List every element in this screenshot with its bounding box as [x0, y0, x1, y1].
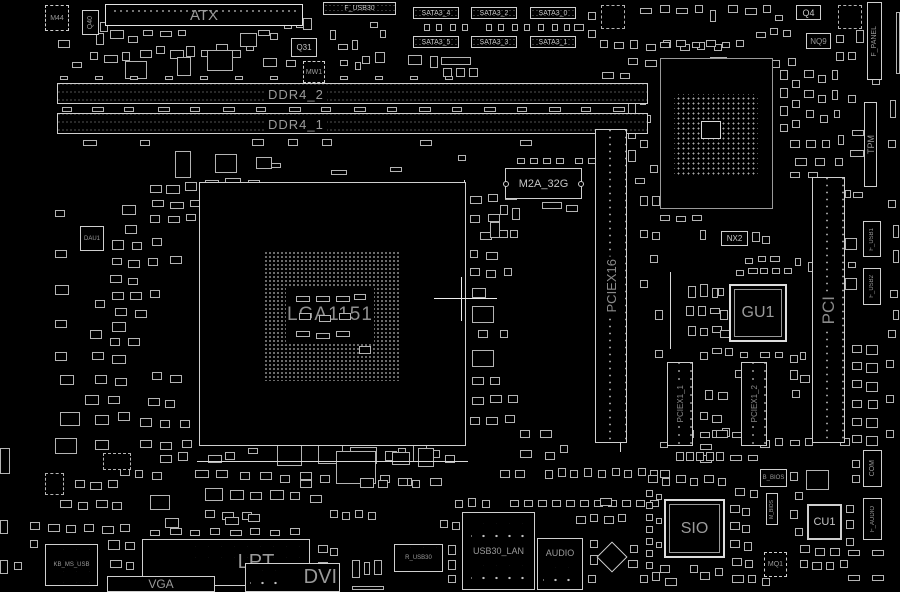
passive-component [893, 225, 899, 238]
passive-component [210, 528, 220, 535]
chip-m44[interactable]: M44 [45, 5, 69, 31]
passive-component [150, 185, 162, 193]
passive-component [132, 242, 142, 250]
passive-component [330, 548, 338, 556]
passive-component [660, 5, 670, 13]
passive-component [230, 530, 242, 536]
passive-component [375, 52, 385, 63]
pci-slot[interactable]: PCI [812, 177, 845, 443]
passive-component [300, 480, 312, 488]
passive-component [760, 352, 770, 358]
pci-label: PCI [819, 293, 839, 327]
passive-component [800, 545, 810, 553]
qfn-chip [601, 5, 625, 29]
chip-sio-label: SIO [681, 520, 709, 538]
chip-dau1-label: DAU1 [84, 236, 100, 242]
passive-component [888, 200, 896, 208]
ddr4-2-label: DDR4_2 [265, 87, 327, 102]
passive-component [690, 478, 698, 486]
passive-component [745, 258, 753, 264]
passive-component [836, 52, 844, 61]
passive-component [524, 24, 530, 31]
f-audio-header[interactable]: F_AUDIO [863, 498, 882, 540]
passive-component [762, 578, 770, 586]
chip-nq9-label: NQ9 [810, 37, 826, 46]
passive-component [566, 205, 578, 212]
passive-component [806, 140, 816, 148]
passive-component [508, 395, 518, 403]
passive-component [763, 5, 771, 13]
passive-component [216, 470, 228, 478]
passive-component [652, 232, 660, 240]
passive-component [848, 52, 856, 60]
passive-component [872, 575, 884, 581]
passive-component [55, 438, 77, 454]
passive-component [160, 31, 172, 37]
passive-component [122, 205, 136, 215]
passive-component [440, 520, 448, 528]
chip-sio[interactable]: SIO [664, 499, 725, 558]
chip-q31[interactable]: Q31 [291, 38, 317, 57]
passive-component [780, 124, 788, 132]
dvi-connector[interactable]: DVI [245, 563, 340, 592]
passive-component [686, 452, 694, 461]
passive-component [868, 400, 878, 409]
passive-component [300, 472, 312, 480]
m2a-32g-slot[interactable]: M2A_32G [505, 168, 582, 199]
passive-component [728, 5, 738, 13]
passive-component [780, 70, 788, 80]
usb30-lan-pins [471, 523, 527, 549]
passive-component [756, 32, 766, 38]
passive-component [150, 290, 160, 298]
passive-component [836, 35, 844, 43]
passive-component [128, 260, 140, 268]
passive-component [700, 572, 710, 580]
passive-component [505, 415, 515, 423]
passive-component [270, 530, 280, 536]
passive-component [462, 24, 468, 31]
passive-component [30, 540, 38, 548]
passive-component [140, 440, 152, 448]
passive-component [732, 558, 742, 566]
passive-component [445, 76, 453, 80]
passive-component [515, 470, 525, 478]
passive-component [470, 268, 480, 276]
passive-component [602, 72, 614, 79]
pch-chipset[interactable] [660, 58, 773, 209]
passive-component [600, 40, 608, 48]
sata3-3-connector[interactable]: SATA3_3 [471, 36, 517, 48]
passive-component [148, 398, 160, 406]
passive-component [250, 528, 260, 535]
passive-component [352, 560, 360, 578]
m2-mount-hole [578, 181, 584, 187]
passive-component [893, 250, 899, 263]
passive-component [60, 375, 74, 385]
passive-component [718, 288, 724, 296]
passive-component [736, 40, 744, 47]
passive-component [640, 230, 648, 238]
socket-pad [316, 333, 330, 339]
passive-component [624, 470, 632, 478]
passive-component [660, 42, 670, 48]
passive-component [486, 24, 492, 31]
passive-component [450, 24, 456, 31]
audio-label: AUDIO [546, 548, 575, 558]
passive-component [128, 338, 140, 346]
passive-component [83, 140, 97, 146]
passive-component [110, 30, 124, 39]
f-usb30-label: F_USB30 [344, 5, 374, 12]
passive-component [656, 494, 662, 500]
passive-component [581, 107, 591, 112]
passive-component [872, 550, 884, 556]
passive-component [538, 24, 544, 31]
passive-component [712, 415, 722, 423]
passive-component [482, 500, 490, 508]
passive-component [838, 135, 844, 145]
socket-pad [319, 315, 331, 322]
com-label: COM [869, 460, 876, 476]
passive-component [580, 500, 589, 507]
chip-dau1[interactable]: DAU1 [80, 226, 104, 251]
passive-component [140, 418, 152, 427]
passive-component [280, 475, 290, 483]
passive-component [866, 436, 878, 446]
passive-component [700, 284, 708, 297]
passive-component [545, 452, 555, 460]
b-bios-chip[interactable]: B_BIOS [760, 469, 787, 487]
passive-component [112, 292, 124, 300]
passive-component [430, 56, 438, 68]
usb30-lan-connector[interactable]: USB30_LAN [462, 512, 535, 590]
passive-component [735, 488, 745, 496]
passive-component [750, 490, 758, 498]
passive-component [248, 514, 260, 522]
sata3-2-label: SATA3_2 [480, 10, 509, 17]
passive-component [856, 30, 864, 43]
sata3-0-connector[interactable]: SATA3_0 [530, 7, 576, 19]
passive-component [195, 470, 209, 478]
passive-component [780, 106, 788, 116]
passive-component [135, 310, 147, 318]
passive-component [722, 42, 730, 48]
passive-component [538, 500, 547, 507]
passive-component [60, 500, 72, 508]
passive-component [692, 42, 700, 48]
passive-component [182, 440, 192, 448]
pcb-boardview: M44 Q40 ATX F_USB30 SATA3_4 SATA3_2 SATA… [0, 0, 900, 592]
passive-component [742, 508, 750, 516]
passive-component [848, 575, 860, 581]
passive-component [588, 12, 596, 20]
passive-component [646, 502, 653, 509]
tpm-header[interactable]: TPM [864, 102, 877, 187]
passive-component [85, 395, 99, 405]
sata3-0-label: SATA3_0 [539, 10, 568, 17]
passive-component [792, 120, 800, 128]
passive-component [398, 478, 408, 486]
passive-component [472, 306, 494, 323]
passive-component [102, 526, 114, 534]
passive-component [150, 495, 170, 510]
r-usb30-label: R_USB30 [405, 555, 432, 561]
kb-ms-usb-connector[interactable]: KB_MS_USB [45, 544, 98, 586]
vga-connector[interactable]: VGA [107, 576, 215, 592]
passive-component [540, 430, 552, 438]
passive-component [852, 435, 862, 443]
ddr4-1-dimm-slot[interactable]: DDR4_1 [57, 113, 648, 134]
passive-component [368, 512, 376, 520]
passive-component [352, 586, 384, 590]
passive-component [340, 60, 348, 66]
passive-component [160, 442, 172, 450]
passive-component [576, 516, 586, 524]
cpu-socket-lga1151[interactable]: LGA1151 [199, 182, 466, 446]
passive-component [512, 24, 518, 31]
passive-component [118, 412, 130, 421]
passive-component [886, 395, 894, 403]
passive-component [650, 165, 658, 173]
socket-pad [336, 296, 350, 302]
passive-component [392, 452, 410, 465]
sata3-1-connector[interactable]: SATA3_1 [530, 36, 576, 48]
passive-component [646, 514, 653, 521]
passive-component [730, 540, 740, 548]
passive-component [258, 30, 270, 36]
passive-component [656, 542, 662, 548]
socket-pad [354, 294, 366, 300]
passive-component [158, 107, 170, 112]
passive-component [498, 24, 504, 31]
passive-component [55, 352, 67, 361]
passive-component [430, 478, 442, 486]
passive-component [795, 528, 803, 536]
passive-component [260, 472, 272, 480]
passive-component [342, 512, 350, 520]
passive-component [676, 8, 688, 14]
usb30-lan-pins [471, 565, 527, 585]
passive-component [60, 76, 68, 80]
passive-component [175, 151, 191, 178]
passive-component [552, 500, 561, 507]
passive-component [845, 238, 857, 250]
passive-component [695, 5, 703, 13]
passive-component [792, 80, 800, 88]
passive-component [458, 155, 466, 161]
passive-component [95, 300, 105, 308]
f-usb1-header[interactable]: F_USB1 [863, 221, 881, 257]
passive-component [676, 452, 684, 461]
passive-component [286, 60, 296, 67]
f-usb30-header[interactable]: F_USB30 [323, 2, 396, 15]
passive-component [613, 107, 625, 112]
sata3-5-connector[interactable]: SATA3_5 [413, 36, 459, 48]
trace-line [670, 272, 671, 349]
com-header[interactable]: COM [863, 450, 882, 487]
passive-component [543, 158, 551, 164]
passive-component [108, 396, 120, 404]
passive-component [490, 377, 500, 385]
passive-component [112, 355, 126, 364]
passive-component [742, 525, 750, 533]
passive-component [740, 352, 748, 358]
passive-component [263, 58, 277, 67]
passive-component [640, 575, 648, 583]
passive-component [655, 350, 663, 358]
passive-component [775, 15, 783, 21]
passive-component [484, 107, 496, 112]
passive-component [530, 158, 538, 164]
passive-component [215, 154, 237, 173]
passive-component [152, 238, 162, 246]
chip-mw1[interactable]: MW1 [303, 61, 325, 83]
passive-component [104, 55, 118, 63]
passive-component [510, 230, 518, 238]
passive-component [92, 107, 104, 112]
passive-component [832, 90, 838, 100]
audio-connector[interactable]: AUDIO [537, 538, 583, 590]
passive-component [688, 326, 696, 336]
passive-component [852, 362, 862, 370]
passive-component [205, 510, 215, 518]
passive-component [270, 76, 278, 80]
passive-component [130, 292, 142, 300]
sata3-2-connector[interactable]: SATA3_2 [471, 7, 517, 19]
pciex16-slot[interactable]: PCIEX16 [595, 129, 627, 443]
passive-component [646, 538, 653, 545]
passive-component [374, 560, 382, 575]
passive-component [488, 194, 498, 202]
passive-component [62, 107, 72, 112]
passive-component [656, 518, 662, 524]
sata3-4-connector[interactable]: SATA3_4 [413, 7, 459, 19]
passive-component [804, 70, 814, 78]
passive-component [75, 480, 85, 488]
passive-component [235, 76, 243, 80]
passive-component [152, 472, 162, 480]
passive-component [886, 360, 894, 368]
passive-component [340, 76, 348, 80]
passive-component [115, 378, 127, 386]
passive-component [364, 562, 370, 575]
passive-component [710, 308, 720, 314]
passive-component [60, 412, 80, 426]
passive-component [784, 268, 792, 274]
m2a-32g-label: M2A_32G [519, 178, 569, 190]
passive-component [790, 370, 798, 380]
passive-component [248, 448, 258, 454]
passive-component [848, 262, 856, 268]
pciex1-1-slot[interactable]: PCIEX1_1 [667, 362, 693, 446]
passive-component [95, 375, 107, 384]
kb-ms-usb-label: KB_MS_USB [53, 562, 89, 568]
passive-component [108, 540, 120, 550]
passive-component [818, 95, 826, 103]
chip-q40[interactable]: Q40 [82, 10, 99, 35]
passive-component [552, 24, 558, 31]
passive-component [122, 52, 130, 61]
passive-component [252, 139, 264, 146]
chip-gu1[interactable]: GU1 [729, 284, 787, 342]
passive-component [270, 490, 284, 500]
f-panel-header[interactable]: F_PANEL [867, 2, 882, 80]
passive-component [424, 24, 430, 31]
passive-component [645, 60, 657, 67]
passive-component [0, 448, 10, 474]
socket-pad [339, 313, 351, 320]
passive-component [452, 522, 460, 530]
passive-component [852, 460, 860, 468]
passive-component [472, 397, 484, 405]
passive-component [852, 345, 862, 353]
r-usb30-connector[interactable]: R_USB30 [394, 544, 443, 572]
chip-m44-label: M44 [50, 15, 64, 22]
passive-component [775, 352, 783, 358]
passive-component [795, 158, 807, 166]
passive-component [470, 215, 480, 223]
passive-component [866, 363, 878, 373]
passive-component [800, 352, 806, 360]
passive-component [55, 210, 65, 217]
passive-component [330, 30, 336, 40]
passive-component [800, 560, 808, 568]
passive-component [752, 232, 760, 242]
passive-component [700, 444, 712, 450]
passive-component [815, 158, 825, 166]
passive-component [517, 158, 525, 164]
passive-component [190, 107, 200, 112]
passive-component [748, 575, 756, 583]
ddr4-2-dimm-slot[interactable]: DDR4_2 [57, 83, 648, 104]
pciex1-2-slot[interactable]: PCIEX1_2 [741, 362, 767, 446]
chip-q4[interactable]: Q4 [796, 5, 821, 20]
passive-component [205, 488, 223, 501]
passive-component [706, 40, 716, 47]
passive-component [321, 107, 331, 112]
passive-component [486, 252, 498, 260]
passive-component [745, 560, 753, 568]
passive-component [700, 328, 708, 336]
passive-component [338, 44, 348, 50]
chip-cu1[interactable]: CU1 [807, 504, 842, 540]
socket-pad [316, 296, 330, 302]
m-bios-chip[interactable]: M_BIOS [766, 493, 778, 525]
passive-component [628, 560, 638, 568]
passive-component [890, 290, 898, 298]
passive-component [604, 516, 614, 524]
passive-component [512, 208, 520, 220]
atx-power-connector[interactable]: ATX [105, 4, 303, 26]
passive-component [770, 28, 778, 35]
passive-component [690, 565, 698, 573]
audio-codec-diamond[interactable] [596, 541, 627, 572]
passive-component [168, 216, 180, 223]
f-usb2-header[interactable]: F_USB2 [863, 268, 881, 305]
passive-component [115, 308, 127, 316]
passive-component [783, 30, 791, 37]
vga-label: VGA [148, 577, 173, 591]
passive-component [150, 530, 160, 536]
passive-component [470, 196, 482, 204]
chip-nx2[interactable]: NX2 [721, 231, 748, 246]
chip-mq1[interactable]: MQ1 [764, 552, 787, 577]
passive-component [790, 510, 798, 519]
qfn-chip [45, 473, 64, 495]
passive-component [676, 475, 686, 483]
chip-nq9[interactable]: NQ9 [806, 33, 831, 49]
